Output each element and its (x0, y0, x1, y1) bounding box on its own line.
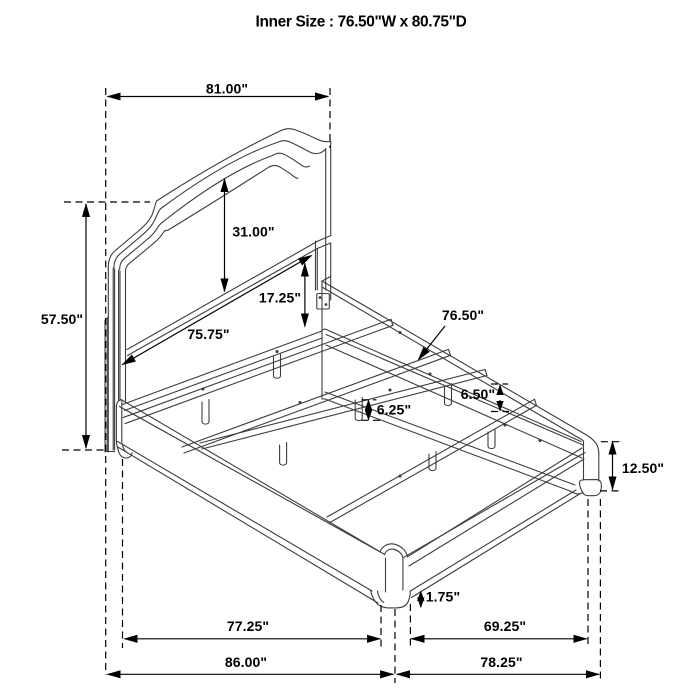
svg-text:17.25": 17.25" (259, 290, 301, 306)
svg-text:Inner Size : 76.50"W x 80.75"D: Inner Size : 76.50"W x 80.75"D (256, 14, 467, 31)
svg-text:81.00": 81.00" (206, 81, 248, 97)
svg-text:77.25": 77.25" (227, 618, 269, 634)
svg-text:31.00": 31.00" (232, 224, 274, 240)
svg-text:57.50": 57.50" (41, 311, 83, 327)
svg-text:78.25": 78.25" (480, 654, 522, 670)
svg-text:1.75": 1.75" (426, 589, 460, 605)
svg-text:76.50": 76.50" (442, 307, 484, 323)
svg-text:6.25": 6.25" (377, 402, 411, 418)
svg-text:6.50": 6.50" (461, 386, 495, 402)
svg-text:12.50": 12.50" (622, 460, 664, 476)
svg-text:86.00": 86.00" (225, 654, 267, 670)
svg-text:75.75": 75.75" (187, 326, 229, 342)
svg-text:69.25": 69.25" (484, 618, 526, 634)
